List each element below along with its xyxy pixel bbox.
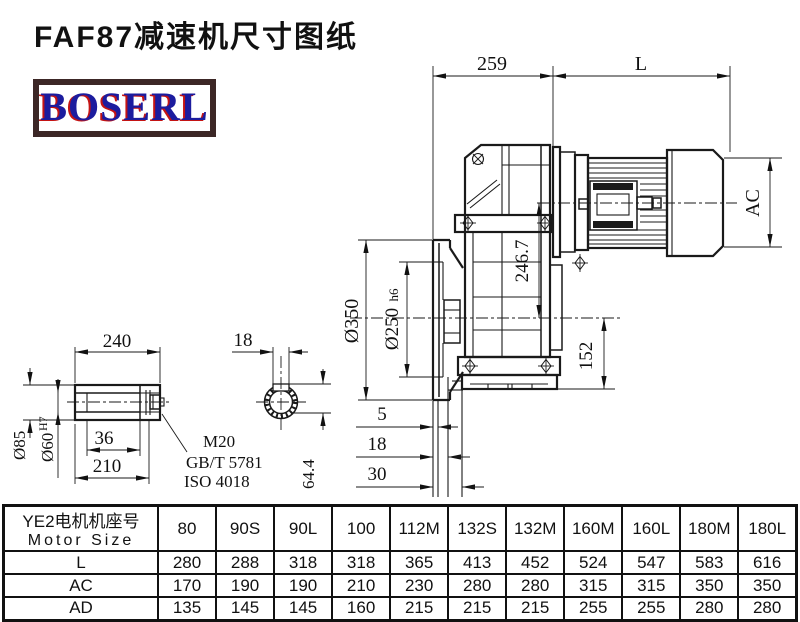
- dim-60: Ø60: [38, 433, 57, 462]
- dim-18-keyway: 18: [234, 330, 253, 351]
- frame-size-column-header: 160M: [564, 506, 622, 552]
- frame-size-column-header: 160L: [622, 506, 680, 552]
- dim-85: Ø85: [10, 431, 29, 460]
- dim-36: 36: [95, 428, 114, 449]
- shaft-cross-section: [232, 347, 331, 430]
- table-cell: 215: [506, 597, 564, 620]
- table-cell: 318: [274, 551, 332, 574]
- table-cell: 145: [274, 597, 332, 620]
- table-cell: 315: [622, 574, 680, 597]
- hollow-shaft-detail: [67, 385, 187, 452]
- frame-size-column-header: 112M: [390, 506, 448, 552]
- motor-size-header-en: Motor Size: [5, 532, 157, 550]
- frame-size-column-header: 100: [332, 506, 390, 552]
- dim-64-4: 64.4: [299, 459, 318, 489]
- row-label: AC: [4, 574, 159, 597]
- dim-AC: AC: [742, 189, 764, 217]
- table-cell: 210: [332, 574, 390, 597]
- dim-30: 30: [368, 464, 387, 485]
- dim-250-tolerance: h6: [386, 288, 401, 302]
- table-row: L280288318318365413452524547583616: [4, 551, 797, 574]
- table-cell: 280: [158, 551, 216, 574]
- table-cell: 145: [216, 597, 274, 620]
- dim-L: L: [635, 53, 647, 75]
- row-label: AD: [4, 597, 159, 620]
- table-cell: 215: [448, 597, 506, 620]
- table-cell: 288: [216, 551, 274, 574]
- motor-side-view: [553, 147, 723, 272]
- label-m20: M20: [203, 432, 235, 451]
- frame-size-column-header: 90L: [274, 506, 332, 552]
- dimension-drawing: 259 L AC 246.7 152 Ø350 Ø250 h6 5 18 30 …: [0, 0, 800, 504]
- dim-60-tolerance: H7: [36, 416, 50, 431]
- motor-size-table: YE2电机机座号Motor Size8090S90L100112M132S132…: [2, 504, 798, 622]
- dim-259: 259: [477, 53, 507, 75]
- dim-246-7: 246.7: [512, 240, 533, 283]
- motor-size-header-cn: YE2电机机座号: [5, 507, 157, 532]
- table-cell: 350: [738, 574, 796, 597]
- dim-240: 240: [103, 331, 132, 352]
- table-cell: 255: [622, 597, 680, 620]
- table-row: AC170190190210230280280315315350350: [4, 574, 797, 597]
- dimension-labels: 259 L AC 246.7 152 Ø350 Ø250 h6 5 18 30 …: [10, 53, 764, 491]
- table-cell: 255: [564, 597, 622, 620]
- dim-152: 152: [576, 342, 597, 371]
- frame-size-column-header: 180L: [738, 506, 796, 552]
- bolt-icon: [460, 214, 476, 232]
- table-cell: 280: [680, 597, 738, 620]
- row-label: L: [4, 551, 159, 574]
- frame-size-column-header: 180M: [680, 506, 738, 552]
- table-cell: 280: [738, 597, 796, 620]
- table-cell: 280: [506, 574, 564, 597]
- frame-size-column-header: 132M: [506, 506, 564, 552]
- table-cell: 365: [390, 551, 448, 574]
- table-cell: 230: [390, 574, 448, 597]
- table-cell: 190: [216, 574, 274, 597]
- bolt-icon: [572, 254, 588, 272]
- bolt-icon: [538, 357, 554, 375]
- motor-size-header: YE2电机机座号Motor Size: [4, 506, 159, 552]
- label-iso-4018: ISO 4018: [184, 472, 250, 491]
- dimension-lines: [356, 66, 782, 490]
- dim-350: Ø350: [341, 299, 363, 343]
- table-cell: 583: [680, 551, 738, 574]
- table-cell: 452: [506, 551, 564, 574]
- table-cell: 160: [332, 597, 390, 620]
- dim-5: 5: [377, 404, 387, 425]
- table-cell: 524: [564, 551, 622, 574]
- frame-size-column-header: 132S: [448, 506, 506, 552]
- face-bolt-icon: [473, 154, 484, 165]
- table-cell: 190: [274, 574, 332, 597]
- label-gbt-5781: GB/T 5781: [186, 453, 263, 472]
- motor-stator-section: [579, 181, 661, 230]
- frame-size-column-header: 80: [158, 506, 216, 552]
- table-row: AD135145145160215215215255255280280: [4, 597, 797, 620]
- dim-18-side: 18: [368, 434, 387, 455]
- table-cell: 215: [390, 597, 448, 620]
- table-cell: 547: [622, 551, 680, 574]
- frame-size-column-header: 90S: [216, 506, 274, 552]
- table-cell: 616: [738, 551, 796, 574]
- table-cell: 135: [158, 597, 216, 620]
- table-cell: 315: [564, 574, 622, 597]
- gearbox-main-view: [433, 145, 562, 497]
- drawing-sheet: FAF87减速机尺寸图纸 BOSERL: [0, 0, 800, 614]
- table-cell: 413: [448, 551, 506, 574]
- bolt-icon: [462, 357, 478, 375]
- table-cell: 318: [332, 551, 390, 574]
- dim-210: 210: [93, 456, 122, 477]
- table-cell: 350: [680, 574, 738, 597]
- table-cell: 170: [158, 574, 216, 597]
- dim-250: Ø250: [382, 308, 403, 350]
- table-cell: 280: [448, 574, 506, 597]
